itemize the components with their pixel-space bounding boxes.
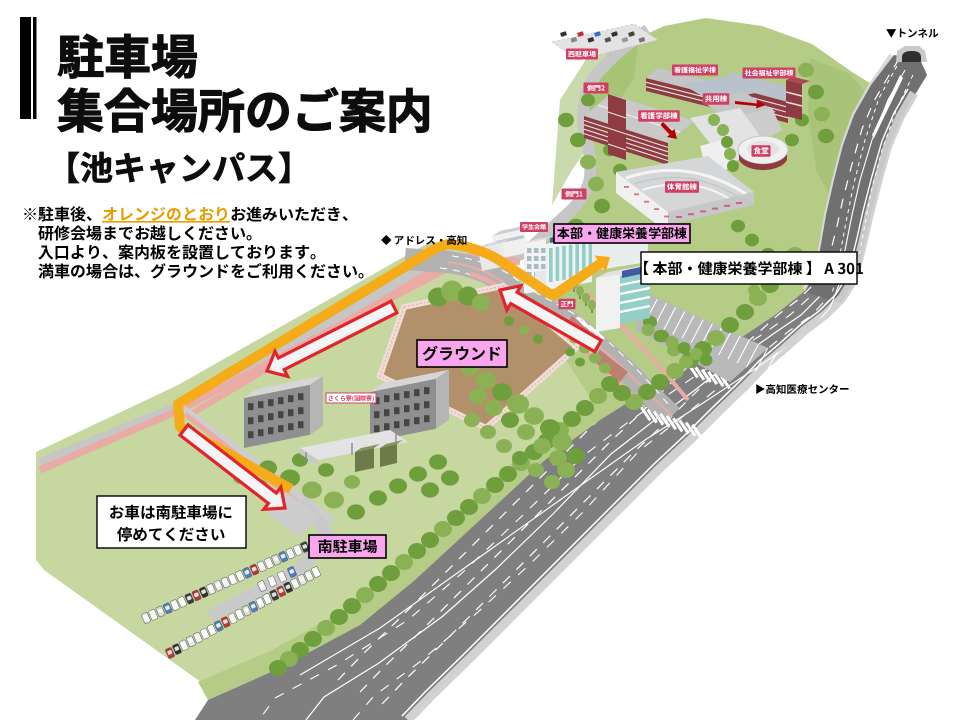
svg-text:側門2: 側門2 (587, 84, 605, 94)
svg-text:体育館棟: 体育館棟 (667, 182, 697, 193)
svg-text:共用棟: 共用棟 (705, 94, 728, 105)
svg-text:社会福祉学部棟: 社会福祉学部棟 (744, 69, 794, 79)
svg-text:学生会館: 学生会館 (521, 222, 547, 231)
svg-text:集合場所のご案内: 集合場所のご案内 (57, 73, 433, 142)
svg-text:◆ アドレス・高知: ◆ アドレス・高知 (381, 233, 467, 248)
svg-text:【 本部・健康栄養学部棟 】 A 301: 【 本部・健康栄養学部棟 】 A 301 (634, 258, 864, 279)
svg-text:【池キャンパス】: 【池キャンパス】 (47, 142, 311, 190)
svg-text:▶高知医療センター: ▶高知医療センター (755, 382, 850, 397)
svg-text:側門1: 側門1 (565, 190, 583, 200)
svg-text:西駐車場: 西駐車場 (568, 50, 596, 60)
svg-text:食堂: 食堂 (754, 146, 769, 157)
svg-text:本部・健康栄養学部棟: 本部・健康栄養学部棟 (556, 223, 687, 242)
svg-text:正門: 正門 (561, 298, 575, 308)
svg-text:看護福祉学棟: 看護福祉学棟 (673, 66, 716, 76)
svg-text:看護学部棟: 看護学部棟 (640, 111, 678, 122)
svg-text:満車の場合は、グラウンドをご利用ください。: 満車の場合は、グラウンドをご利用ください。 (38, 258, 374, 282)
svg-text:南駐車場: 南駐車場 (317, 536, 377, 557)
svg-text:グラウンド: グラウンド (422, 340, 502, 364)
svg-text:お車は南駐車場に: お車は南駐車場に (109, 501, 233, 523)
svg-text:さくら寮(国際寮): さくら寮(国際寮) (328, 394, 375, 403)
svg-text:▼トンネル: ▼トンネル (886, 26, 939, 41)
svg-text:停めてください: 停めてください (117, 523, 226, 545)
